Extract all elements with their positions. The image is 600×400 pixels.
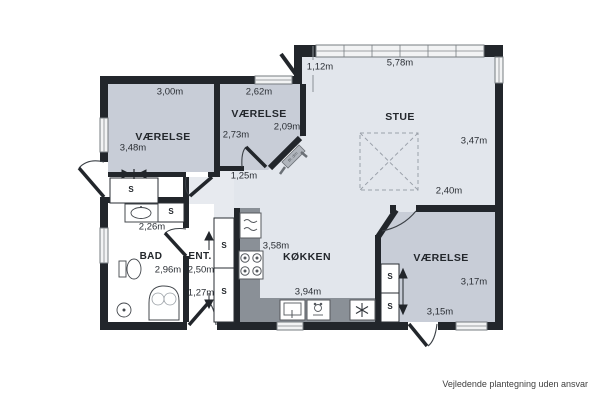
disclaimer-text: Vejledende plantegning uden ansvar [442, 379, 588, 389]
dim-vaerelse1-top: 3,00m [157, 87, 183, 97]
kitchen-bottom-window [277, 322, 303, 330]
dim-vaerelse3-bottom: 3,15m [427, 307, 453, 317]
closet-label-s2: S [168, 208, 173, 216]
floor-plan-drawing [0, 0, 600, 400]
dim-koekken-bottom: 3,94m [295, 287, 321, 297]
dim-entre-upper: 2,50m [188, 265, 214, 275]
bathroom-sink-faucet-icon [140, 206, 142, 208]
floor-plan: VÆRELSE 3,00m 3,48m VÆRELSE 2,62m 2,73m … [0, 0, 600, 400]
bad-door-leaf [165, 233, 186, 256]
dim-corridor: 1,25m [231, 171, 257, 181]
dim-vaerelse2-left: 2,73m [223, 130, 249, 140]
room-label-bad: BAD [140, 252, 163, 262]
room-label-entre: ENT. [188, 252, 211, 262]
closet-label-s4: S [221, 288, 226, 296]
dishwasher [307, 300, 330, 320]
left-wall-window-1 [100, 118, 108, 152]
dim-bad-top: 2,26m [139, 222, 165, 232]
dim-entre-lower: 1,27m [188, 288, 214, 298]
room-label-vaerelse-3: VÆRELSE [413, 253, 468, 264]
toilet-tank-icon [119, 261, 126, 277]
left-wall-window-2 [100, 228, 108, 263]
dim-vaerelse3-right: 3,17m [461, 277, 487, 287]
closet-column-entre [214, 218, 234, 322]
dim-vaerelse2-top: 2,62m [246, 87, 272, 97]
room-label-koekken: KØKKEN [283, 252, 331, 263]
oven [240, 213, 261, 238]
dim-vaerelse3-top: 2,40m [436, 186, 462, 196]
vaerelse3-bottom-window [456, 322, 487, 330]
bad-door-arc [165, 229, 186, 234]
stue-top-window [316, 45, 484, 57]
vaerelse3-bottom-door-arc [428, 324, 437, 346]
dim-vaerelse2-right: 2,09m [274, 122, 300, 132]
closet-label-s5: S [387, 273, 392, 281]
shower-drain-center [123, 309, 126, 312]
vaerelse2-top-window [255, 76, 292, 84]
closet-label-s3: S [221, 242, 226, 250]
dim-stue-offset: 1,12m [307, 62, 333, 72]
right-wall-window [495, 57, 503, 83]
closet-s1 [110, 178, 158, 203]
room-label-stue: STUE [385, 112, 415, 123]
dim-vaerelse1-left: 3,48m [120, 143, 146, 153]
vaerelse3-bottom-door-leaf [409, 324, 427, 346]
dim-stue-right: 3,47m [461, 136, 487, 146]
dim-bad-side: 2,96m [155, 265, 181, 275]
toilet-bowl-icon [127, 259, 141, 279]
dim-stue-top: 5,78m [387, 58, 413, 68]
dim-koekken-left: 3,58m [263, 241, 289, 251]
room-label-vaerelse-1: VÆRELSE [135, 132, 190, 143]
room-label-vaerelse-2: VÆRELSE [231, 109, 286, 120]
closet-label-s1: S [128, 186, 133, 194]
entry-door-leaf [79, 168, 104, 197]
closet-label-s6: S [387, 303, 392, 311]
